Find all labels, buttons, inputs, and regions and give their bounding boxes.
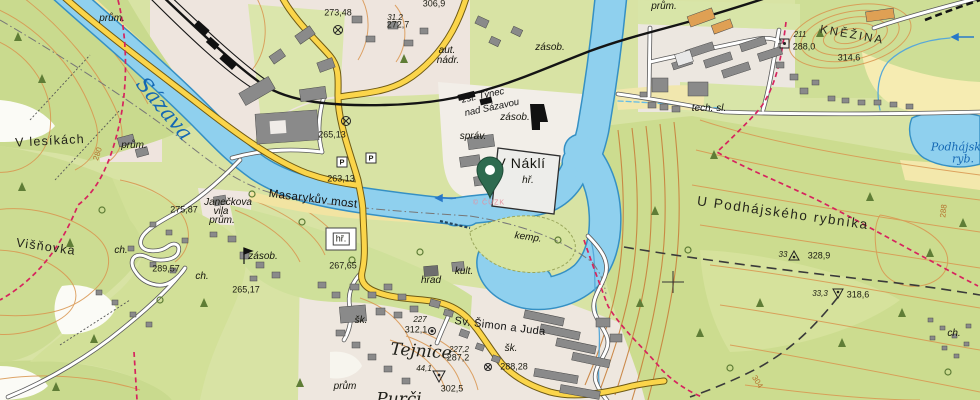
- cemetery: [326, 228, 356, 250]
- map-canvas[interactable]: Sázavaprům.prům.prům.prům.prům273,4831.2…: [0, 0, 980, 400]
- location-pin[interactable]: [470, 154, 510, 202]
